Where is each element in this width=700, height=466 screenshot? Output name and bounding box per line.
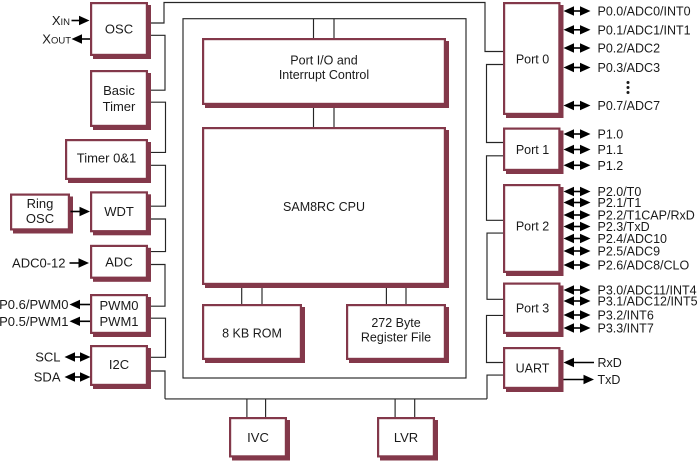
svg-text:RxD: RxD (598, 356, 622, 370)
svg-text:WDT: WDT (104, 204, 134, 219)
svg-text:Port 2: Port 2 (516, 220, 549, 234)
svg-text:LVR: LVR (394, 430, 418, 445)
svg-text:Port I/O and: Port I/O and (290, 54, 357, 68)
svg-text:PWM1: PWM1 (100, 314, 139, 329)
svg-text:Port 1: Port 1 (516, 143, 549, 157)
svg-text:P0.5/PWM1: P0.5/PWM1 (0, 314, 69, 329)
svg-text:PWM0: PWM0 (100, 298, 139, 313)
svg-text:P2.6/ADC8/CLO: P2.6/ADC8/CLO (598, 259, 690, 273)
svg-text:P3.2/INT6: P3.2/INT6 (598, 309, 654, 323)
svg-text:Register File: Register File (361, 331, 431, 345)
svg-text:Ring: Ring (27, 196, 54, 211)
svg-text:P0.1/ADC1/INT1: P0.1/ADC1/INT1 (598, 23, 691, 37)
svg-text:P0.7/ADC7: P0.7/ADC7 (598, 99, 661, 113)
svg-text:P3.1/ADC12/INT5: P3.1/ADC12/INT5 (598, 295, 698, 309)
svg-text:Timer 0&1: Timer 0&1 (77, 151, 136, 166)
svg-text:Basic: Basic (103, 83, 135, 98)
svg-text:P1.0: P1.0 (598, 128, 624, 142)
svg-text:ADC: ADC (105, 255, 132, 270)
svg-text:SAM8RC CPU: SAM8RC CPU (283, 200, 365, 214)
svg-text:UART: UART (516, 362, 550, 376)
svg-text:P1.1: P1.1 (598, 143, 624, 157)
svg-text:SCL: SCL (35, 350, 60, 365)
svg-text:P0.0/ADC0/INT0: P0.0/ADC0/INT0 (598, 5, 691, 19)
svg-text:TxD: TxD (598, 373, 621, 387)
svg-text:SDA: SDA (34, 370, 61, 385)
svg-text:P1.2: P1.2 (598, 159, 624, 173)
svg-text:P0.3/ADC3: P0.3/ADC3 (598, 61, 661, 75)
svg-text:XIN: XIN (52, 13, 70, 28)
svg-text:Interrupt Control: Interrupt Control (279, 68, 369, 82)
svg-text:P0.6/PWM0: P0.6/PWM0 (0, 297, 69, 312)
svg-text:272 Byte: 272 Byte (371, 316, 420, 330)
svg-text:P2.5/ADC9: P2.5/ADC9 (598, 245, 661, 259)
svg-text:Port 3: Port 3 (516, 302, 549, 316)
svg-text:P0.2/ADC2: P0.2/ADC2 (598, 42, 661, 56)
svg-text:P3.3/INT7: P3.3/INT7 (598, 322, 654, 336)
svg-text:I2C: I2C (109, 357, 129, 372)
svg-text:XOUT: XOUT (42, 32, 71, 47)
svg-text:ADC0-12: ADC0-12 (12, 256, 65, 271)
svg-text:Port 0: Port 0 (516, 53, 549, 67)
svg-text:OSC: OSC (26, 211, 54, 226)
svg-text:Timer: Timer (103, 99, 136, 114)
svg-text:OSC: OSC (105, 22, 133, 37)
svg-text:8 KB ROM: 8 KB ROM (222, 327, 282, 341)
svg-text:IVC: IVC (247, 430, 269, 445)
